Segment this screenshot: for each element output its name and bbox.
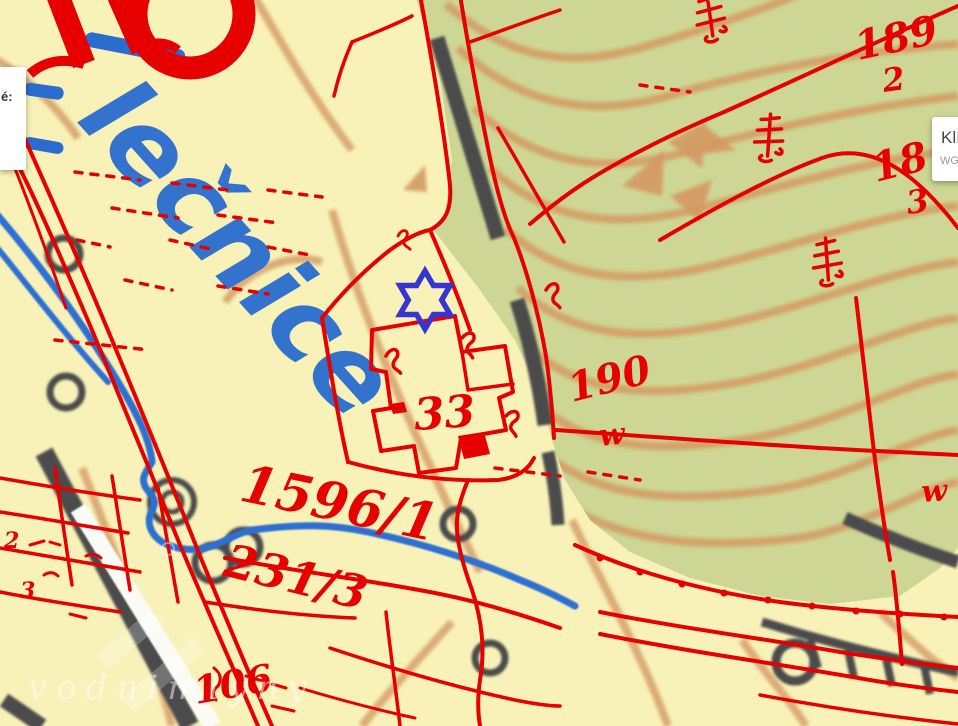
left-popup-text-fragment: é: bbox=[1, 89, 13, 104]
right-popup-title: Klí bbox=[941, 128, 958, 148]
left-info-popup: é: bbox=[0, 67, 26, 170]
right-popup-subtitle: WG bbox=[940, 155, 958, 167]
culture-symbol: w bbox=[597, 416, 628, 454]
right-info-popup: Klí WG bbox=[932, 117, 958, 181]
parcel-number: 3 bbox=[20, 578, 35, 604]
parcel-number: 2 bbox=[3, 528, 19, 554]
map-canvas[interactable]: lečnice bbox=[0, 0, 958, 726]
culture-symbol: w bbox=[920, 473, 949, 510]
map-viewport[interactable]: lečnice bbox=[0, 0, 958, 726]
house-number: 33 bbox=[412, 386, 477, 441]
